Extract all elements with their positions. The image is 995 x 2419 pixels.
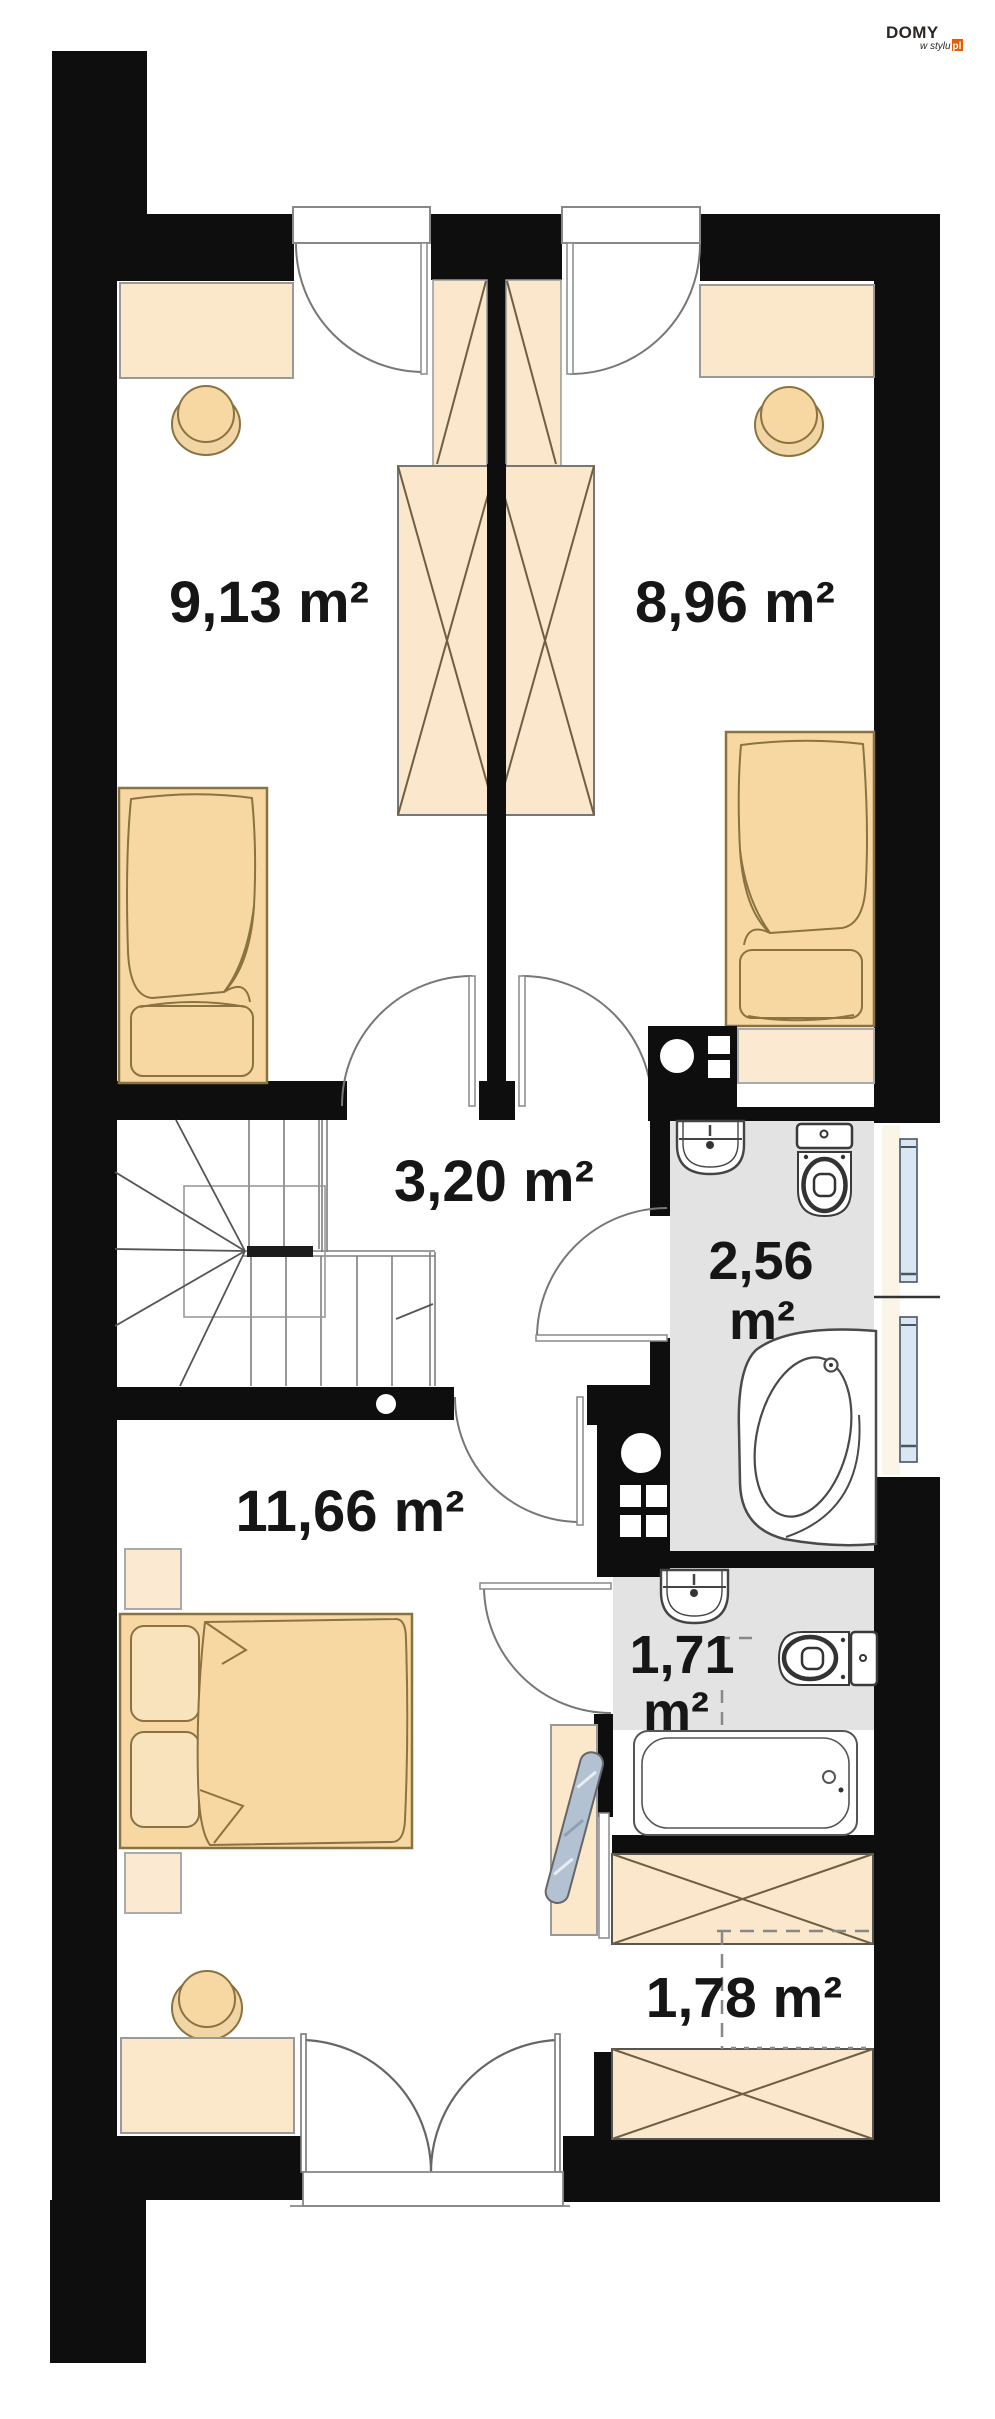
svg-text:1,78 m²: 1,78 m²	[646, 1966, 842, 2030]
svg-text:DOMY: DOMY	[886, 23, 939, 42]
svg-text:m²: m²	[643, 1682, 709, 1742]
svg-text:11,66 m²: 11,66 m²	[236, 1479, 465, 1544]
svg-text:1,71: 1,71	[629, 1625, 734, 1685]
svg-text:8,96 m²: 8,96 m²	[635, 570, 835, 635]
svg-text:9,13 m²: 9,13 m²	[169, 570, 369, 635]
svg-text:3,20 m²: 3,20 m²	[394, 1149, 594, 1214]
svg-text:2,56: 2,56	[708, 1231, 813, 1291]
svg-text:pl: pl	[953, 41, 962, 52]
svg-text:w stylu: w stylu	[920, 41, 951, 52]
svg-text:m²: m²	[729, 1291, 795, 1351]
